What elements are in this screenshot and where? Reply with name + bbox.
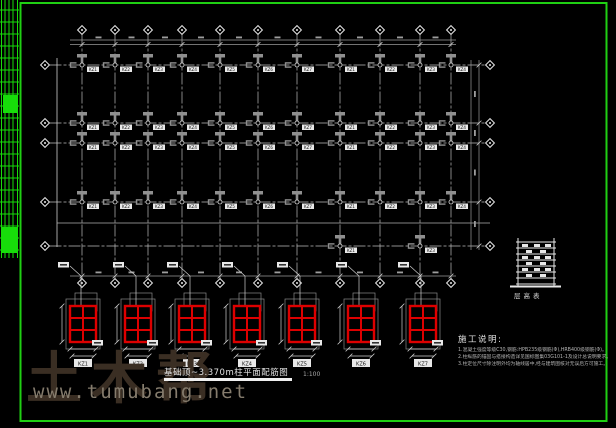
column-tag: KZ6 bbox=[265, 145, 273, 150]
column-tag: KZ5 bbox=[227, 204, 235, 209]
column-tag: KZ1 bbox=[347, 204, 355, 209]
section-mark bbox=[104, 203, 110, 204]
column-tag: KZ5 bbox=[227, 145, 235, 150]
column-section bbox=[215, 132, 225, 136]
section-mark bbox=[409, 66, 415, 67]
section-mark bbox=[209, 62, 215, 63]
elevation-window bbox=[534, 244, 540, 247]
column-section bbox=[292, 54, 302, 58]
section-mark bbox=[329, 199, 335, 200]
grid-axis-bubble-dot bbox=[489, 201, 491, 203]
section-mark bbox=[103, 120, 104, 126]
column-section bbox=[375, 112, 385, 116]
dim-text-mark bbox=[198, 272, 204, 274]
section-mark bbox=[137, 120, 143, 121]
section-mark bbox=[171, 124, 177, 125]
section-mark bbox=[328, 62, 329, 68]
column-node bbox=[180, 200, 184, 204]
column-node bbox=[449, 121, 453, 125]
section-mark bbox=[439, 62, 440, 68]
section-mark bbox=[439, 199, 440, 205]
section-mark bbox=[329, 247, 335, 248]
section-mark bbox=[104, 140, 110, 141]
section-mark bbox=[247, 140, 253, 141]
column-section bbox=[215, 191, 225, 195]
section-mark bbox=[440, 62, 446, 63]
elevation-window bbox=[522, 268, 528, 271]
column-section bbox=[292, 132, 302, 136]
leader-line bbox=[234, 266, 245, 276]
section-mark bbox=[70, 140, 71, 146]
section-mark bbox=[286, 203, 292, 204]
dim-text-mark bbox=[474, 91, 476, 97]
dim-text-mark bbox=[474, 221, 476, 227]
section-mark bbox=[103, 62, 104, 68]
notes-heading: 施工说明: bbox=[458, 333, 610, 345]
title-underline bbox=[164, 378, 292, 381]
column-node bbox=[378, 200, 382, 204]
column-tag: KZ6 bbox=[265, 125, 273, 130]
column-section bbox=[335, 54, 345, 58]
dim-text-mark bbox=[433, 37, 439, 39]
callout-text-mark bbox=[400, 264, 407, 266]
section-mark bbox=[286, 144, 292, 145]
section-mark bbox=[286, 120, 292, 121]
section-mark bbox=[137, 203, 143, 204]
drawing-scale: 1:100 bbox=[303, 371, 320, 378]
section-mark bbox=[285, 62, 286, 68]
column-section bbox=[143, 112, 153, 116]
grid-axis-bubble-dot bbox=[219, 282, 221, 284]
column-section bbox=[110, 191, 120, 195]
callout-text-mark bbox=[115, 264, 122, 266]
section-mark bbox=[440, 120, 446, 121]
callout-text-mark bbox=[224, 264, 231, 266]
column-node bbox=[256, 141, 260, 145]
grid-axis-bubble-dot bbox=[379, 29, 381, 31]
grid-axis-bubble-dot bbox=[489, 245, 491, 247]
column-tag: KZ4 bbox=[458, 67, 466, 72]
elevation-window bbox=[540, 262, 546, 265]
section-mark bbox=[70, 199, 71, 205]
column-tag: KZ4 bbox=[458, 204, 466, 209]
section-mark bbox=[137, 66, 143, 67]
section-mark bbox=[409, 124, 415, 125]
grid-axis-bubble-dot bbox=[419, 29, 421, 31]
column-section bbox=[77, 54, 87, 58]
dim-text-mark bbox=[129, 37, 135, 39]
column-section bbox=[335, 235, 345, 239]
column-section bbox=[110, 132, 120, 136]
section-mark bbox=[328, 140, 329, 146]
grid-axis-bubble-dot bbox=[44, 245, 46, 247]
column-node bbox=[449, 141, 453, 145]
callout-text-mark bbox=[60, 264, 67, 266]
dim-text-mark bbox=[397, 37, 403, 39]
grid-axis-bubble-dot bbox=[181, 282, 183, 284]
section-mark bbox=[286, 199, 292, 200]
dim-text-mark bbox=[316, 37, 322, 39]
section-mark bbox=[136, 199, 137, 205]
column-node bbox=[449, 200, 453, 204]
section-mark bbox=[369, 124, 375, 125]
callout-text-mark bbox=[338, 264, 345, 266]
column-section bbox=[335, 132, 345, 136]
elevation-window bbox=[545, 256, 551, 259]
leader-line bbox=[70, 266, 81, 276]
column-section bbox=[292, 112, 302, 116]
section-mark bbox=[246, 62, 247, 68]
column-node bbox=[256, 121, 260, 125]
section-mark bbox=[209, 66, 215, 67]
grid-axis-bubble-dot bbox=[296, 282, 298, 284]
column-node bbox=[418, 121, 422, 125]
column-node bbox=[80, 200, 84, 204]
section-mark bbox=[103, 140, 104, 146]
section-mark bbox=[409, 203, 415, 204]
section-mark bbox=[369, 62, 375, 63]
cad-canvas: KZ1KZ2KZ3KZ4KZ5KZ6KZ7KZ1KZ2KZ3KZ4KZ1KZ2K… bbox=[0, 0, 616, 428]
column-tag: KZ3 bbox=[427, 67, 435, 72]
grid-axis-bubble-dot bbox=[147, 282, 149, 284]
dim-text-mark bbox=[275, 37, 281, 39]
section-mark bbox=[328, 120, 329, 126]
section-mark bbox=[137, 199, 143, 200]
section-mark bbox=[368, 62, 369, 68]
column-node bbox=[378, 141, 382, 145]
watermark-url: www.tumubang.net bbox=[33, 381, 248, 403]
column-tag: KZ3 bbox=[427, 204, 435, 209]
section-mark bbox=[170, 62, 171, 68]
leader-line bbox=[125, 266, 136, 276]
column-tag: KZ3 bbox=[155, 67, 163, 72]
grid-axis-bubble-dot bbox=[44, 201, 46, 203]
section-mark bbox=[136, 140, 137, 146]
section-mark bbox=[285, 140, 286, 146]
section-mark bbox=[170, 140, 171, 146]
column-section bbox=[415, 112, 425, 116]
section-mark bbox=[329, 203, 335, 204]
leader-line bbox=[348, 266, 359, 276]
section-mark bbox=[368, 140, 369, 146]
section-mark bbox=[209, 120, 215, 121]
section-mark bbox=[209, 203, 215, 204]
section-mark bbox=[209, 144, 215, 145]
column-tag: KZ1 bbox=[347, 67, 355, 72]
section-mark bbox=[408, 199, 409, 205]
column-tag: KZ2 bbox=[122, 204, 130, 209]
section-mark bbox=[329, 66, 335, 67]
section-mark bbox=[246, 199, 247, 205]
grid-axis-bubble-dot bbox=[181, 29, 183, 31]
column-section bbox=[253, 54, 263, 58]
column-section bbox=[143, 54, 153, 58]
callout-text-mark bbox=[372, 342, 379, 344]
column-tag: KZ4 bbox=[189, 204, 197, 209]
column-tag: KZ1 bbox=[89, 125, 97, 130]
column-section bbox=[415, 191, 425, 195]
column-section bbox=[143, 191, 153, 195]
callout-text-mark bbox=[279, 264, 286, 266]
column-tag: KZ5 bbox=[227, 125, 235, 130]
section-mark bbox=[286, 62, 292, 63]
grid-axis-bubble-dot bbox=[257, 282, 259, 284]
grid-axis-bubble-dot bbox=[489, 142, 491, 144]
column-section bbox=[446, 132, 456, 136]
section-mark bbox=[171, 66, 177, 67]
column-node bbox=[180, 141, 184, 145]
section-mark bbox=[209, 199, 215, 200]
elevation-window bbox=[534, 268, 540, 271]
section-mark bbox=[137, 140, 143, 141]
section-mark bbox=[71, 144, 77, 145]
detail-tag: KZ7 bbox=[418, 361, 428, 367]
section-mark bbox=[286, 66, 292, 67]
column-tag: KZ2 bbox=[387, 204, 395, 209]
column-tag: KZ1 bbox=[89, 67, 97, 72]
grid-axis-bubble-dot bbox=[147, 29, 149, 31]
column-node bbox=[80, 141, 84, 145]
column-section bbox=[335, 112, 345, 116]
section-mark bbox=[329, 124, 335, 125]
column-section bbox=[446, 191, 456, 195]
column-tag: KZ2 bbox=[387, 67, 395, 72]
column-section bbox=[177, 112, 187, 116]
column-tag: KZ4 bbox=[189, 145, 197, 150]
section-mark bbox=[439, 120, 440, 126]
section-mark bbox=[286, 124, 292, 125]
column-tag: KZ7 bbox=[304, 204, 312, 209]
column-section bbox=[143, 132, 153, 136]
section-mark bbox=[440, 144, 446, 145]
detail-tag: KZ6 bbox=[356, 361, 366, 367]
column-node bbox=[113, 141, 117, 145]
grid-axis-bubble-dot bbox=[379, 282, 381, 284]
grid-axis-bubble-dot bbox=[489, 64, 491, 66]
column-node bbox=[295, 121, 299, 125]
section-mark bbox=[285, 120, 286, 126]
section-mark bbox=[171, 203, 177, 204]
column-node bbox=[218, 63, 222, 67]
column-tag: KZ2 bbox=[122, 145, 130, 150]
column-tag: KZ3 bbox=[155, 204, 163, 209]
column-tag: KZ2 bbox=[122, 125, 130, 130]
section-mark bbox=[369, 203, 375, 204]
dim-text-mark bbox=[316, 272, 322, 274]
dim-text-mark bbox=[474, 170, 476, 176]
section-mark bbox=[104, 120, 110, 121]
column-tag: KZ4 bbox=[189, 125, 197, 130]
column-section bbox=[177, 132, 187, 136]
column-node bbox=[418, 63, 422, 67]
column-node bbox=[146, 121, 150, 125]
section-mark bbox=[247, 120, 253, 121]
section-mark bbox=[246, 140, 247, 146]
column-section bbox=[77, 191, 87, 195]
section-mark bbox=[409, 140, 415, 141]
callout-text-mark bbox=[258, 342, 265, 344]
section-mark bbox=[408, 62, 409, 68]
column-tag: KZ3 bbox=[427, 145, 435, 150]
column-section bbox=[446, 112, 456, 116]
section-mark bbox=[71, 124, 77, 125]
elevation-window bbox=[545, 244, 551, 247]
column-node bbox=[256, 63, 260, 67]
section-mark bbox=[328, 243, 329, 249]
section-mark bbox=[171, 140, 177, 141]
section-mark bbox=[104, 124, 110, 125]
column-tag: KZ1 bbox=[89, 204, 97, 209]
dim-text-mark bbox=[96, 272, 102, 274]
column-tag: KZ3 bbox=[427, 248, 435, 253]
column-section bbox=[375, 132, 385, 136]
section-mark bbox=[209, 140, 215, 141]
column-tag: KZ7 bbox=[304, 125, 312, 130]
section-mark bbox=[136, 120, 137, 126]
column-node bbox=[338, 141, 342, 145]
section-mark bbox=[329, 62, 335, 63]
column-tag: KZ1 bbox=[347, 145, 355, 150]
column-node bbox=[218, 141, 222, 145]
elevation-window bbox=[522, 244, 528, 247]
section-mark bbox=[136, 62, 137, 68]
section-mark bbox=[409, 243, 415, 244]
grid-axis-bubble-dot bbox=[114, 29, 116, 31]
section-mark bbox=[368, 120, 369, 126]
dim-text-mark bbox=[275, 272, 281, 274]
grid-axis-bubble-dot bbox=[450, 282, 452, 284]
column-section bbox=[335, 191, 345, 195]
column-section bbox=[110, 54, 120, 58]
section-mark bbox=[104, 199, 110, 200]
section-mark bbox=[328, 199, 329, 205]
section-mark bbox=[208, 199, 209, 205]
column-tag: KZ7 bbox=[304, 67, 312, 72]
section-mark bbox=[247, 62, 253, 63]
adjacent-sheet-block bbox=[3, 95, 18, 113]
column-tag: KZ5 bbox=[227, 67, 235, 72]
column-section bbox=[215, 54, 225, 58]
dim-text-mark bbox=[397, 272, 403, 274]
leader-line bbox=[179, 266, 190, 276]
column-tag: KZ4 bbox=[189, 67, 197, 72]
section-mark bbox=[408, 120, 409, 126]
section-mark bbox=[71, 199, 77, 200]
grid-axis-bubble-dot bbox=[81, 29, 83, 31]
callout-text-mark bbox=[169, 264, 176, 266]
grid-axis-bubble-dot bbox=[489, 122, 491, 124]
section-mark bbox=[171, 144, 177, 145]
leader-line bbox=[410, 266, 421, 276]
column-node bbox=[80, 63, 84, 67]
column-node bbox=[113, 121, 117, 125]
dim-text-mark bbox=[357, 272, 363, 274]
section-mark bbox=[208, 140, 209, 146]
column-section bbox=[415, 54, 425, 58]
notes-line: 2.柱纵筋的锚固与搭接构造详见国标图集03G101-1及设计总说明要求。 bbox=[458, 354, 610, 361]
column-node bbox=[218, 121, 222, 125]
column-node bbox=[449, 63, 453, 67]
section-mark bbox=[170, 199, 171, 205]
column-node bbox=[146, 200, 150, 204]
section-mark bbox=[70, 62, 71, 68]
section-mark bbox=[439, 140, 440, 146]
column-node bbox=[113, 63, 117, 67]
section-mark bbox=[409, 120, 415, 121]
dim-text-mark bbox=[433, 272, 439, 274]
column-node bbox=[338, 200, 342, 204]
section-mark bbox=[440, 203, 446, 204]
notes-line: 1.混凝土强度等级C30,钢筋:HPB235级钢筋(Φ),HRB400级钢筋(Φ… bbox=[458, 347, 610, 354]
section-mark bbox=[369, 144, 375, 145]
column-tag: KZ4 bbox=[458, 125, 466, 130]
section-mark bbox=[208, 62, 209, 68]
column-tag: KZ2 bbox=[122, 67, 130, 72]
section-mark bbox=[71, 66, 77, 67]
detail-tag: KZ5 bbox=[297, 361, 307, 367]
grid-axis-bubble-dot bbox=[44, 142, 46, 144]
dim-text-mark bbox=[236, 37, 242, 39]
section-mark bbox=[369, 199, 375, 200]
section-mark bbox=[171, 120, 177, 121]
column-section bbox=[77, 112, 87, 116]
section-mark bbox=[329, 144, 335, 145]
column-node bbox=[146, 63, 150, 67]
grid-axis-bubble-dot bbox=[44, 122, 46, 124]
column-section bbox=[177, 54, 187, 58]
section-mark bbox=[247, 144, 253, 145]
column-node bbox=[146, 141, 150, 145]
section-mark bbox=[409, 247, 415, 248]
section-mark bbox=[103, 199, 104, 205]
column-tag: KZ3 bbox=[155, 125, 163, 130]
dim-text-mark bbox=[162, 272, 168, 274]
section-mark bbox=[208, 120, 209, 126]
section-mark bbox=[369, 66, 375, 67]
elevation-window bbox=[522, 256, 528, 259]
section-mark bbox=[408, 140, 409, 146]
section-mark bbox=[71, 120, 77, 121]
section-mark bbox=[71, 140, 77, 141]
elevation-window bbox=[540, 274, 546, 277]
section-mark bbox=[70, 120, 71, 126]
section-mark bbox=[71, 62, 77, 63]
column-section bbox=[253, 191, 263, 195]
section-mark bbox=[104, 62, 110, 63]
section-mark bbox=[104, 66, 110, 67]
section-mark bbox=[369, 140, 375, 141]
elevation-window bbox=[545, 268, 551, 271]
column-node bbox=[180, 121, 184, 125]
section-mark bbox=[247, 124, 253, 125]
column-section bbox=[415, 132, 425, 136]
section-mark bbox=[329, 243, 335, 244]
drawing-title: 基础顶~3.370m柱平面配筋图 bbox=[164, 366, 288, 378]
section-mark bbox=[368, 199, 369, 205]
column-node bbox=[418, 244, 422, 248]
section-mark bbox=[137, 124, 143, 125]
grid-axis-bubble-dot bbox=[257, 29, 259, 31]
column-node bbox=[418, 141, 422, 145]
column-node bbox=[295, 141, 299, 145]
column-tag: KZ7 bbox=[304, 145, 312, 150]
column-tag: KZ4 bbox=[458, 145, 466, 150]
column-section bbox=[446, 54, 456, 58]
column-tag: KZ1 bbox=[89, 145, 97, 150]
section-mark bbox=[329, 120, 335, 121]
column-tag: KZ3 bbox=[155, 145, 163, 150]
grid-axis-bubble-dot bbox=[219, 29, 221, 31]
